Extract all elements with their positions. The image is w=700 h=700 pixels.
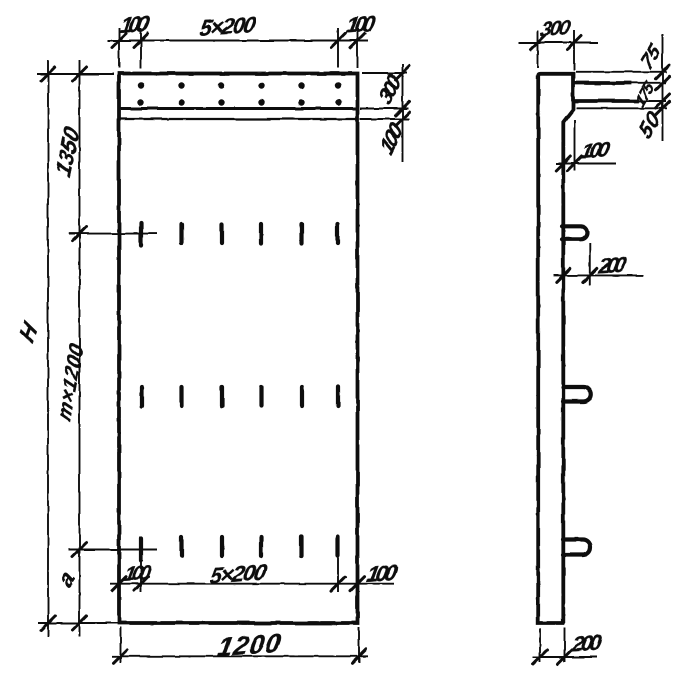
svg-text:300: 300 [538, 17, 572, 41]
svg-text:100: 100 [123, 562, 154, 586]
svg-text:100: 100 [365, 560, 400, 587]
svg-text:1200: 1200 [216, 628, 283, 662]
svg-text:100: 100 [118, 11, 152, 38]
svg-text:200: 200 [596, 253, 628, 279]
svg-text:100: 100 [580, 138, 612, 164]
svg-text:200: 200 [569, 630, 603, 656]
svg-text:5×200: 5×200 [198, 12, 259, 41]
svg-text:100: 100 [344, 11, 378, 38]
svg-text:5×200: 5×200 [208, 560, 269, 589]
